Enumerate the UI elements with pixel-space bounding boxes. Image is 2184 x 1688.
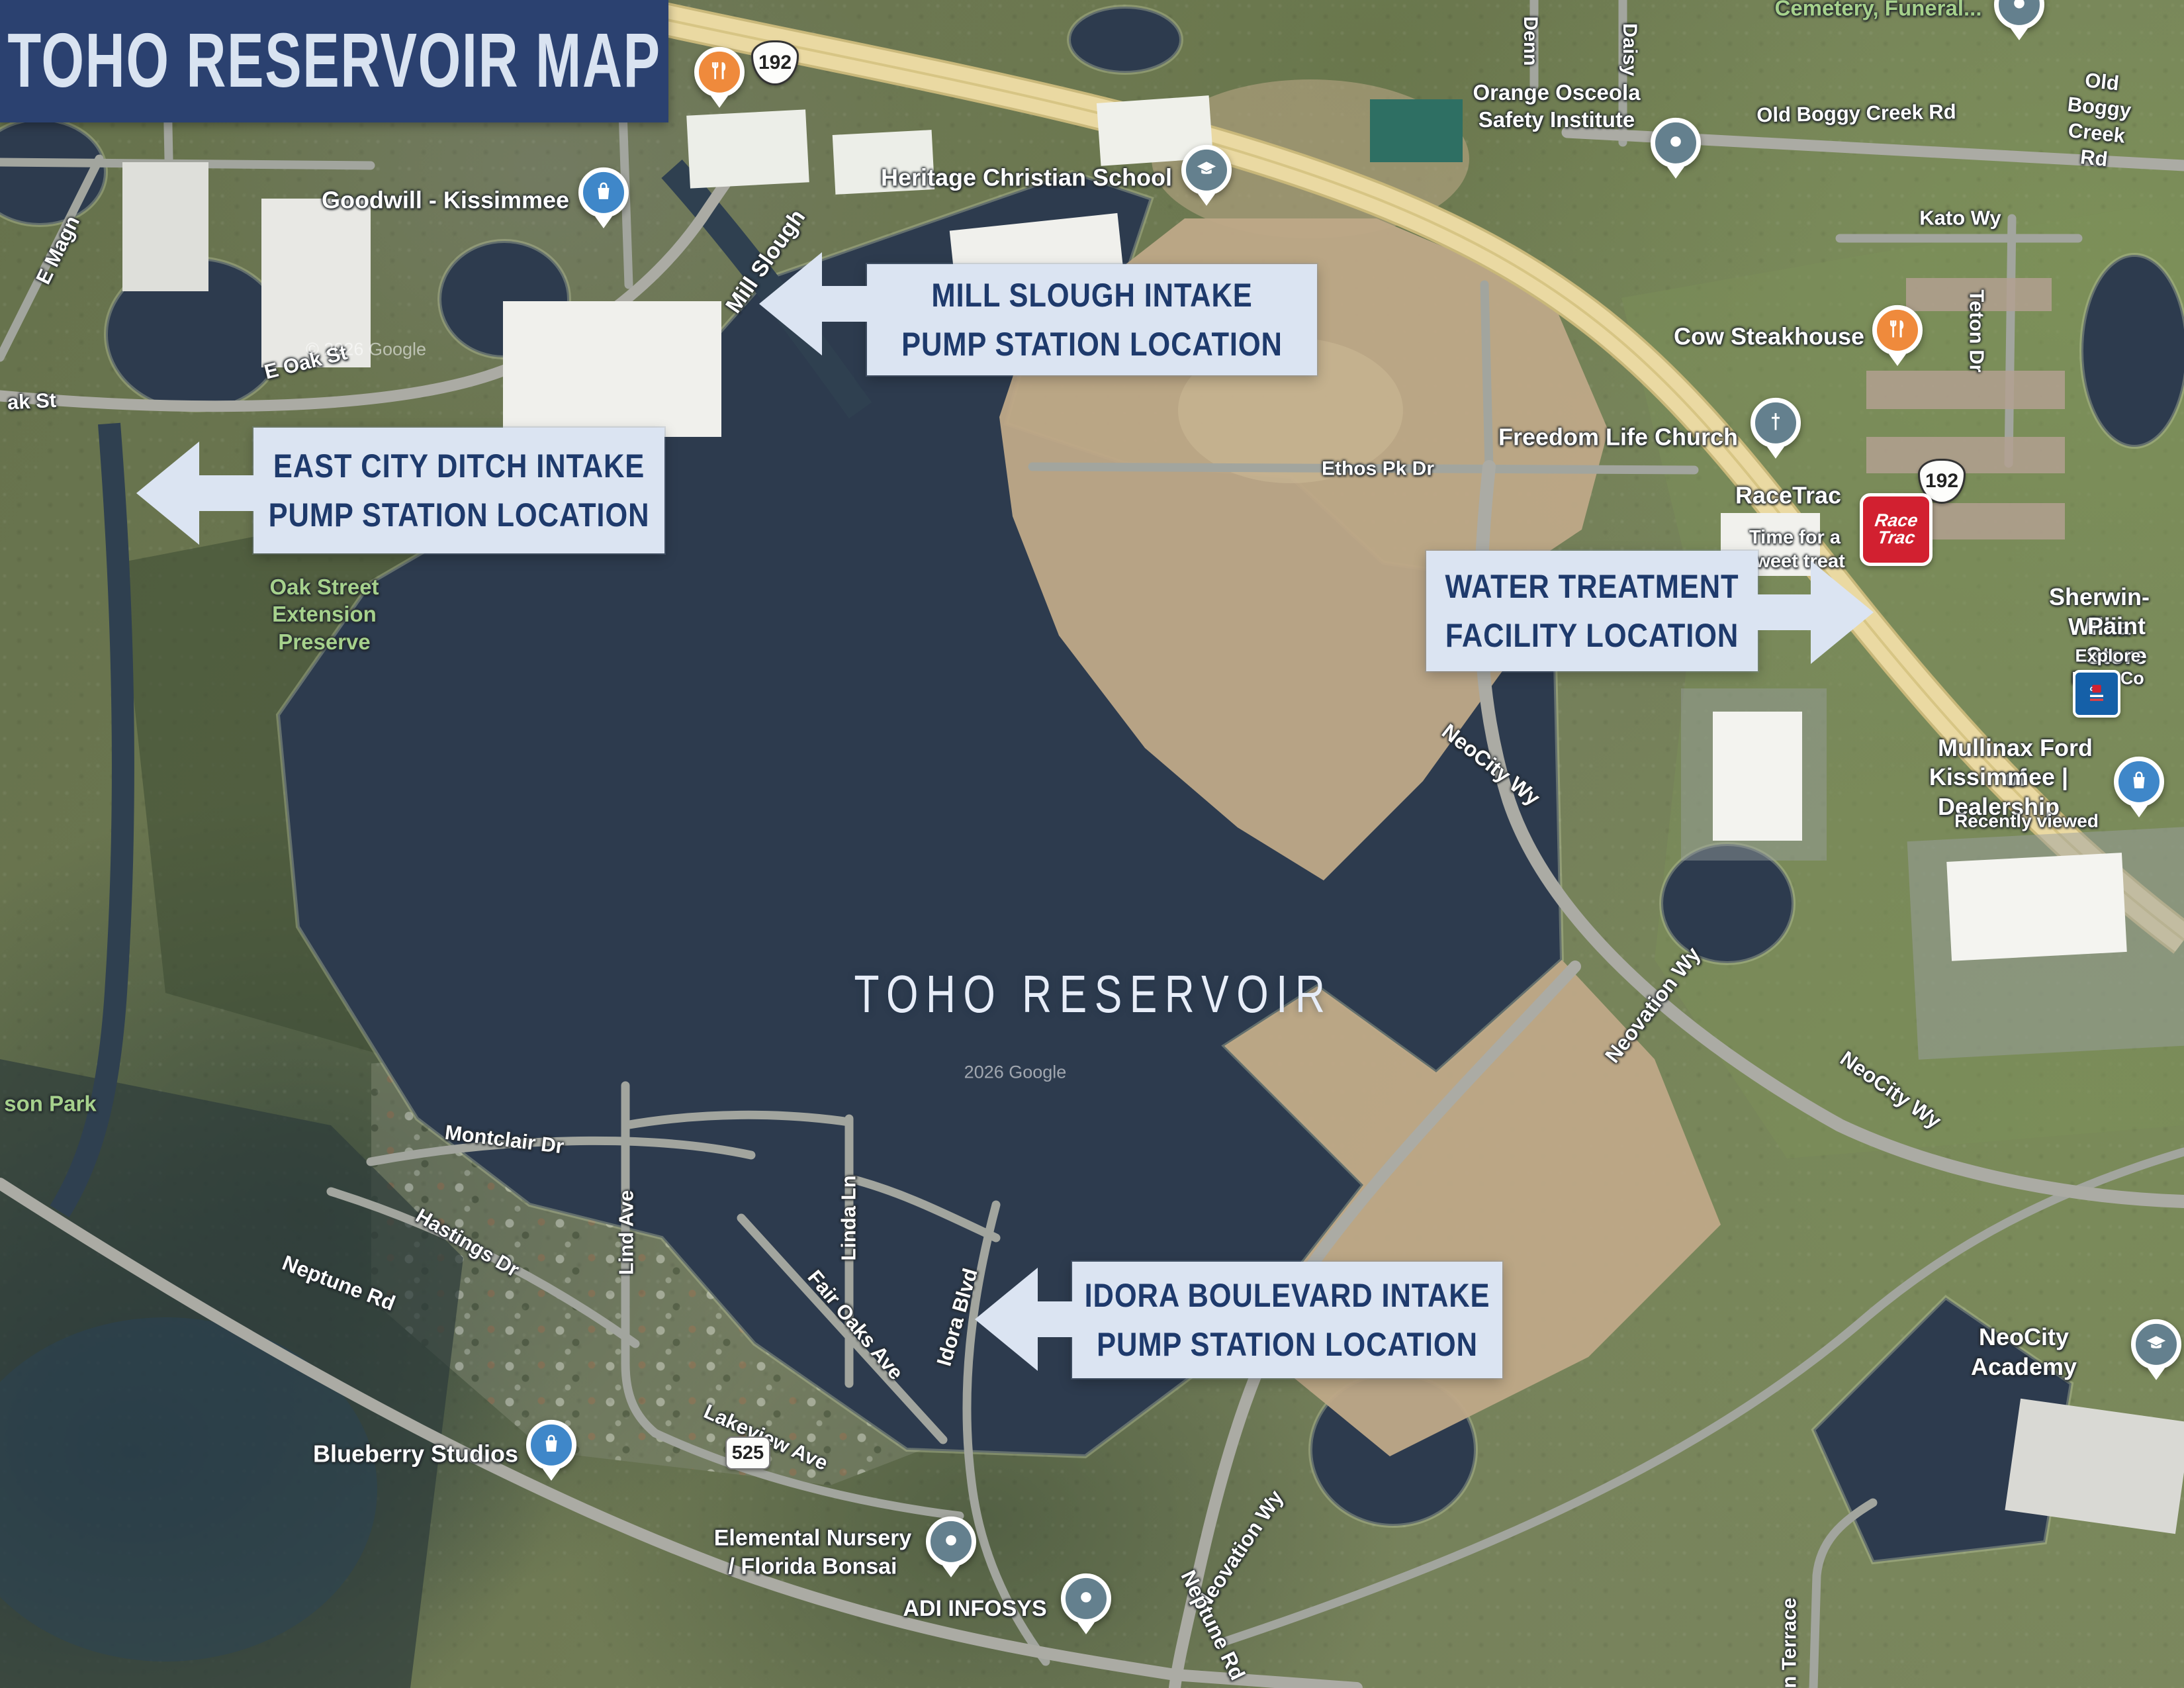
map-label-oak-street-extension-preserve: Oak Street Extension Preserve xyxy=(269,573,379,655)
callout-mill-slough-arrow-shaft xyxy=(821,286,870,322)
map-label-teton-dr: Teton Dr xyxy=(1964,289,1989,372)
map-label-ak-st: ak St xyxy=(7,388,57,416)
callout-mill-slough-text: MILL SLOUGH INTAKEPUMP STATION LOCATION xyxy=(896,264,1288,375)
callout-idora-boulevard: IDORA BOULEVARD INTAKEPUMP STATION LOCAT… xyxy=(1072,1262,1502,1378)
toho-reservoir-map[interactable]: Goodwill - KissimmeeHeritage Christian S… xyxy=(0,0,2184,1688)
callout-east-city-ditch-arrow-head xyxy=(136,442,199,545)
map-pin-restaurant-top[interactable] xyxy=(694,47,745,97)
page-title: TOHO RESERVOIR MAP xyxy=(7,17,660,105)
map-label-neocity-academy: NeoCity Academy xyxy=(1944,1322,2104,1382)
callout-mill-slough-line: PUMP STATION LOCATION xyxy=(901,325,1283,363)
google-watermark-2: 2026 Google xyxy=(964,1062,1067,1083)
map-label-elemental-nursery: Elemental Nursery / Florida Bonsai xyxy=(714,1524,912,1581)
map-label-adi-infosys: ADI INFOSYS xyxy=(903,1595,1046,1623)
route-shield-525-2: 525 xyxy=(725,1436,770,1470)
dot-icon xyxy=(1075,1585,1097,1611)
map-label-old-boggy-creek-rd-2: Old Boggy Creek Rd xyxy=(2050,65,2146,176)
map-geography xyxy=(0,0,2184,1688)
map-label-linda-ln: Linda Ln xyxy=(837,1175,862,1260)
dot-icon xyxy=(1664,130,1687,156)
map-label-cow-steakhouse: Cow Steakhouse xyxy=(1674,322,1864,352)
callout-mill-slough: MILL SLOUGH INTAKEPUMP STATION LOCATION xyxy=(867,264,1317,375)
callout-water-treatment-arrow-shaft xyxy=(1755,594,1812,630)
map-pin-adi-infosys[interactable] xyxy=(1061,1573,1111,1624)
callout-water-treatment-text: WATER TREATMENTFACILITY LOCATION xyxy=(1448,551,1737,671)
map-pin-neocity-academy[interactable] xyxy=(2131,1319,2181,1370)
map-label-mullinax-3: Recently viewed xyxy=(1954,810,2099,833)
callout-east-city-ditch-line: PUMP STATION LOCATION xyxy=(269,496,650,534)
map-pin-heritage-christian-school[interactable] xyxy=(1181,145,1232,195)
callout-idora-boulevard-arrow-shaft xyxy=(1036,1301,1075,1337)
map-pin-goodwill-kissimmee[interactable] xyxy=(578,167,629,218)
callout-water-treatment-arrow-head xyxy=(1811,561,1874,664)
callout-mill-slough-arrow-head xyxy=(759,252,822,355)
map-label-daisy: Daisy xyxy=(1617,23,1642,76)
dot-icon xyxy=(2008,0,2030,17)
shopping-bag-icon xyxy=(540,1432,563,1458)
map-label-lind-ave: Lind Ave xyxy=(614,1190,640,1276)
restaurant-icon xyxy=(1886,317,1909,343)
map-label-freedom-life-church: Freedom Life Church xyxy=(1498,422,1738,452)
dot-icon xyxy=(940,1528,962,1554)
school-icon xyxy=(1195,157,1218,183)
map-label-blueberry-studios: Blueberry Studios xyxy=(313,1439,518,1469)
map-label-old-boggy-creek-rd-1: Old Boggy Creek Rd xyxy=(1756,99,1956,128)
map-label-denn: Denn xyxy=(1518,17,1543,66)
callout-idora-boulevard-arrow-head xyxy=(975,1268,1038,1371)
callout-east-city-ditch-text: EAST CITY DITCH INTAKEPUMP STATION LOCAT… xyxy=(280,428,637,553)
map-title-banner: TOHO RESERVOIR MAP xyxy=(0,0,668,122)
racetrac-logo-text: Trac xyxy=(1876,530,1916,547)
shopping-bag-icon xyxy=(592,179,615,205)
church-icon xyxy=(1764,410,1787,436)
map-pin-elemental-nursery[interactable] xyxy=(926,1517,976,1567)
map-pin-mullinax-ford[interactable] xyxy=(2114,757,2164,807)
callout-east-city-ditch-line: EAST CITY DITCH INTAKE xyxy=(273,447,645,485)
map-label-cemetery-funeral: Cemetery, Funeral... xyxy=(1774,0,1981,22)
callout-idora-boulevard-line: PUMP STATION LOCATION xyxy=(1097,1325,1478,1364)
callout-idora-boulevard-text: IDORA BOULEVARD INTAKEPUMP STATION LOCAT… xyxy=(1100,1262,1475,1378)
map-label-orange-osceola-safety-institute: Orange Osceola Safety Institute xyxy=(1473,79,1640,134)
shopping-bag-icon xyxy=(2128,769,2150,794)
callout-east-city-ditch-arrow-shaft xyxy=(198,475,256,511)
restaurant-icon xyxy=(708,59,731,85)
map-pin-cow-steakhouse[interactable] xyxy=(1872,305,1923,355)
google-watermark-1: © 2026 Google xyxy=(306,340,426,360)
map-label-goodwill-kissimmee: Goodwill - Kissimmee xyxy=(322,185,569,215)
map-pin-freedom-life-church[interactable] xyxy=(1751,398,1801,448)
map-label-n-terrace: n Terrace xyxy=(1777,1597,1803,1688)
map-label-kato-wy: Kato Wy xyxy=(1919,206,2001,232)
map-label-heritage-christian-school: Heritage Christian School xyxy=(881,163,1172,193)
paint-can-icon xyxy=(2083,680,2110,707)
map-label-son-park: son Park xyxy=(4,1090,96,1117)
sherwin-williams-logo[interactable] xyxy=(2073,670,2120,718)
callout-idora-boulevard-line: IDORA BOULEVARD INTAKE xyxy=(1085,1276,1490,1315)
school-icon xyxy=(2145,1331,2167,1357)
callout-water-treatment-line: FACILITY LOCATION xyxy=(1445,616,1739,655)
map-label-toho-reservoir: TOHO RESERVOIR xyxy=(854,961,1333,1027)
map-pin-orange-osceola-safety-institute[interactable] xyxy=(1651,118,1701,168)
callout-mill-slough-line: MILL SLOUGH INTAKE xyxy=(931,276,1252,314)
map-pin-blueberry-studios[interactable] xyxy=(526,1420,576,1470)
callout-water-treatment-line: WATER TREATMENT xyxy=(1445,567,1739,606)
callout-water-treatment: WATER TREATMENTFACILITY LOCATION xyxy=(1426,551,1758,671)
racetrac-logo[interactable]: RaceTrac xyxy=(1860,493,1933,566)
callout-east-city-ditch: EAST CITY DITCH INTAKEPUMP STATION LOCAT… xyxy=(253,428,664,553)
map-label-racetrac-name: RaceTrac xyxy=(1735,481,1841,510)
map-label-ethos-pk-dr: Ethos Pk Dr xyxy=(1322,456,1434,481)
